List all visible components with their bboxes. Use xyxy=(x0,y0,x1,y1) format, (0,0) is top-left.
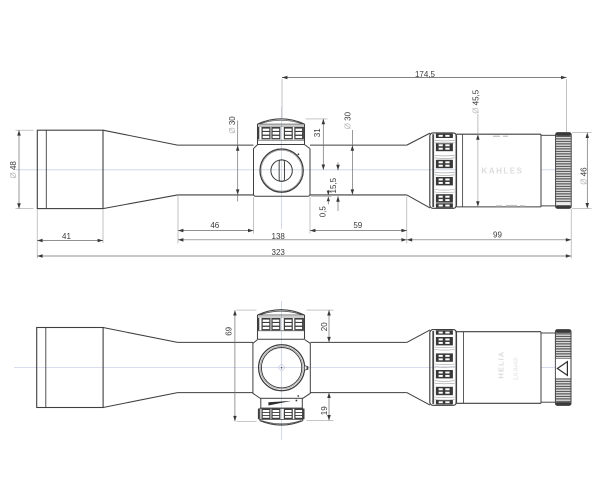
svg-text:323: 323 xyxy=(272,248,286,257)
svg-text:HELIA: HELIA xyxy=(497,351,506,379)
svg-text:31: 31 xyxy=(313,128,322,137)
svg-text:Ø 46: Ø 46 xyxy=(580,167,589,185)
svg-text:KAHLES: KAHLES xyxy=(482,167,524,176)
svg-text:20: 20 xyxy=(320,322,329,331)
svg-text:41: 41 xyxy=(62,232,71,241)
svg-text:138: 138 xyxy=(272,232,286,241)
svg-text:Ø 48: Ø 48 xyxy=(9,161,18,179)
svg-text:99: 99 xyxy=(493,231,502,240)
svg-text:59: 59 xyxy=(353,221,362,230)
svg-text:15,5: 15,5 xyxy=(329,177,338,193)
svg-text:Ø 30: Ø 30 xyxy=(228,116,237,134)
svg-text:174,5: 174,5 xyxy=(415,70,436,79)
svg-text:Ø 30: Ø 30 xyxy=(344,111,353,129)
svg-text:69: 69 xyxy=(224,326,233,335)
svg-text:Ø 45,5: Ø 45,5 xyxy=(471,89,480,114)
svg-text:1,6-8x42i: 1,6-8x42i xyxy=(514,357,520,380)
svg-text:19: 19 xyxy=(320,406,329,415)
svg-text:46: 46 xyxy=(210,221,219,230)
svg-text:0,5: 0,5 xyxy=(318,206,327,218)
